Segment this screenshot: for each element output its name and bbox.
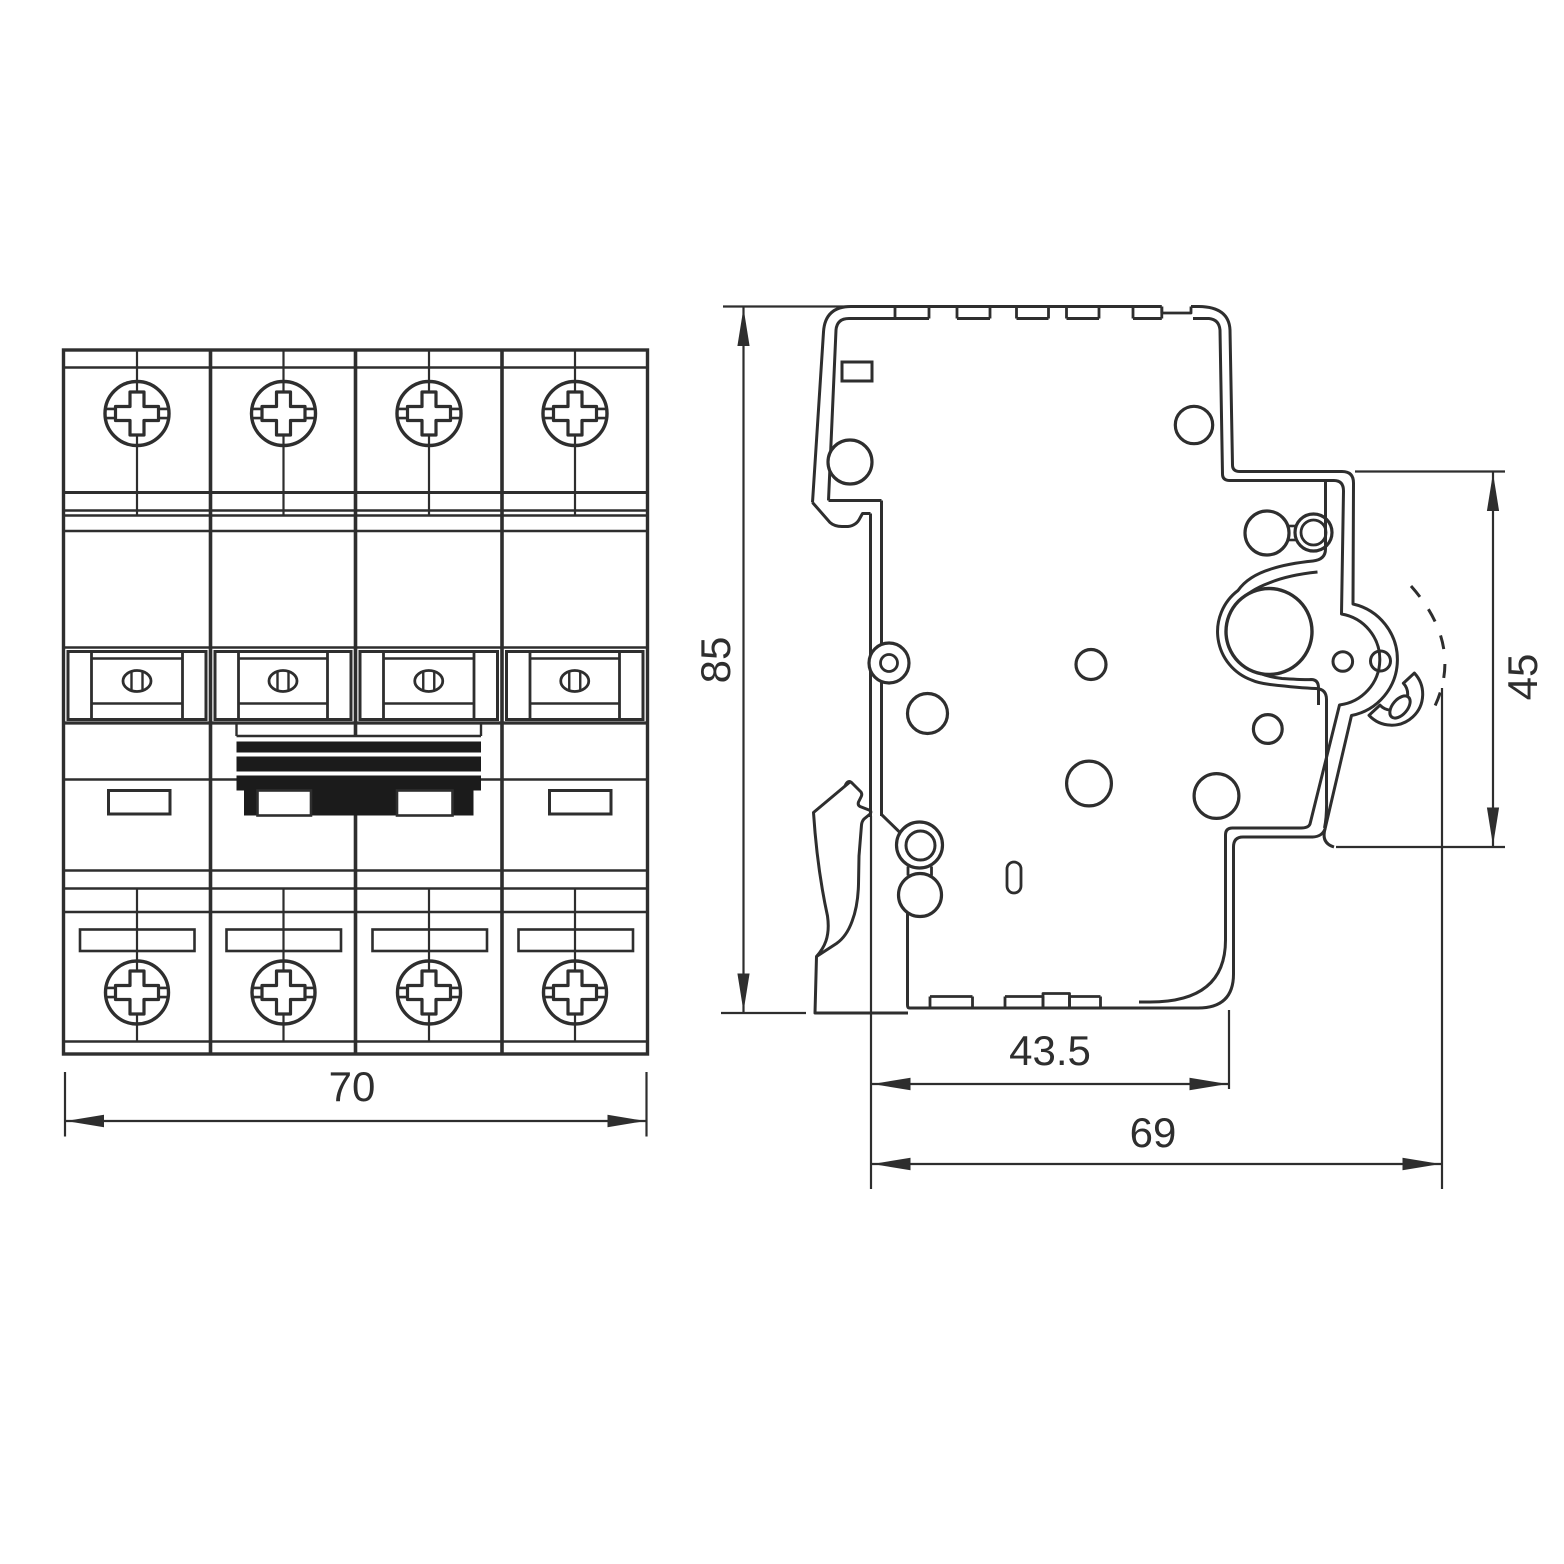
svg-text:45: 45 [1499,654,1546,701]
svg-text:70: 70 [329,1063,376,1110]
svg-text:85: 85 [692,637,739,684]
svg-text:69: 69 [1130,1109,1177,1156]
svg-text:43.5: 43.5 [1009,1027,1091,1074]
